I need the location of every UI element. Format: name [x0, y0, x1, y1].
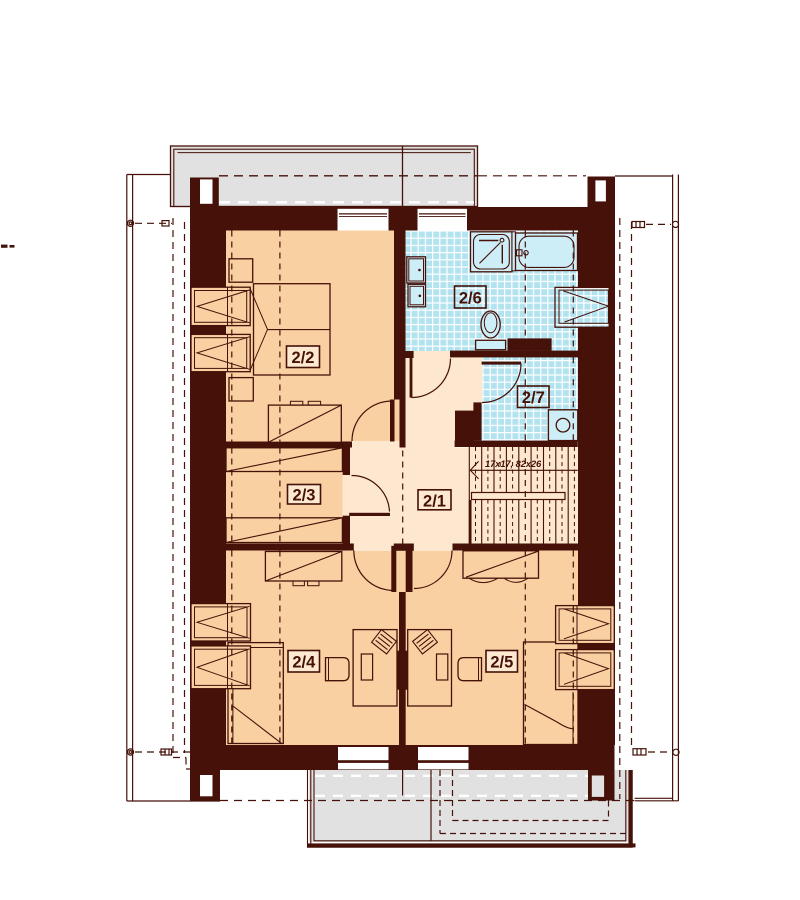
svg-text:2/6: 2/6	[459, 289, 482, 307]
svg-text:2/3: 2/3	[293, 487, 316, 505]
svg-text:2/7: 2/7	[522, 389, 545, 407]
svg-text:17x17, 82x26: 17x17, 82x26	[485, 459, 542, 469]
svg-text:2/4: 2/4	[292, 654, 316, 672]
svg-text:2/5: 2/5	[490, 654, 513, 672]
svg-text:2/2: 2/2	[292, 349, 315, 367]
svg-text:2/1: 2/1	[423, 492, 446, 510]
